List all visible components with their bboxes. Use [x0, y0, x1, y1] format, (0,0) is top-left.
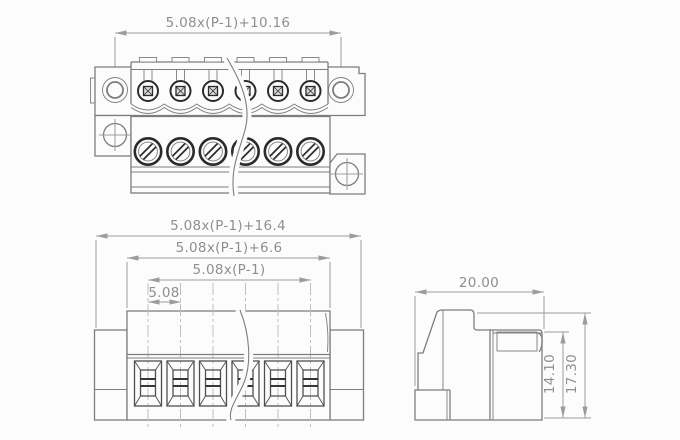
dim-label-hole-span: 5.08x(P-1)+10.16	[166, 15, 291, 31]
front-flange-right	[330, 330, 364, 420]
profile-outline	[415, 310, 542, 420]
dim-label-overall-height: 17.30	[564, 354, 580, 394]
terminal-tab	[172, 58, 189, 63]
terminal-tab	[302, 58, 319, 63]
mounting-ear-lower-right	[330, 154, 365, 194]
terminal-tab	[270, 58, 287, 63]
ear-body	[95, 116, 131, 157]
dimension-pitch-span: 5.08x(P-1)	[148, 262, 311, 280]
dim-label-body: 5.08x(P-1)+6.6	[176, 240, 283, 256]
terminal-tab	[140, 58, 157, 63]
side-view: 20.00 14.10 17.30	[415, 275, 591, 420]
top-view: 5.08x(P-1)+10.16	[91, 15, 366, 196]
terminal-tab	[237, 58, 254, 63]
dimension-pitch: 5.08	[148, 285, 181, 302]
dim-label-inner-height: 14.10	[542, 354, 558, 394]
drawing-sheet: 5.08x(P-1)+10.16	[0, 0, 680, 440]
side-profile	[415, 310, 542, 420]
dim-label-overall: 5.08x(P-1)+16.4	[170, 218, 286, 234]
front-view: 5.08x(P-1)+16.4 5.08x(P-1)+6.6 5.08x(P-1…	[95, 218, 364, 430]
dim-label-pitch-span: 5.08x(P-1)	[193, 262, 266, 278]
technical-drawing-canvas: 5.08x(P-1)+10.16	[0, 0, 680, 440]
mounting-ear-lower-left	[95, 116, 131, 157]
front-flange-left	[95, 330, 128, 420]
dim-label-pitch: 5.08	[148, 285, 179, 301]
terminal-tab	[205, 58, 222, 63]
dim-label-depth: 20.00	[459, 275, 499, 291]
